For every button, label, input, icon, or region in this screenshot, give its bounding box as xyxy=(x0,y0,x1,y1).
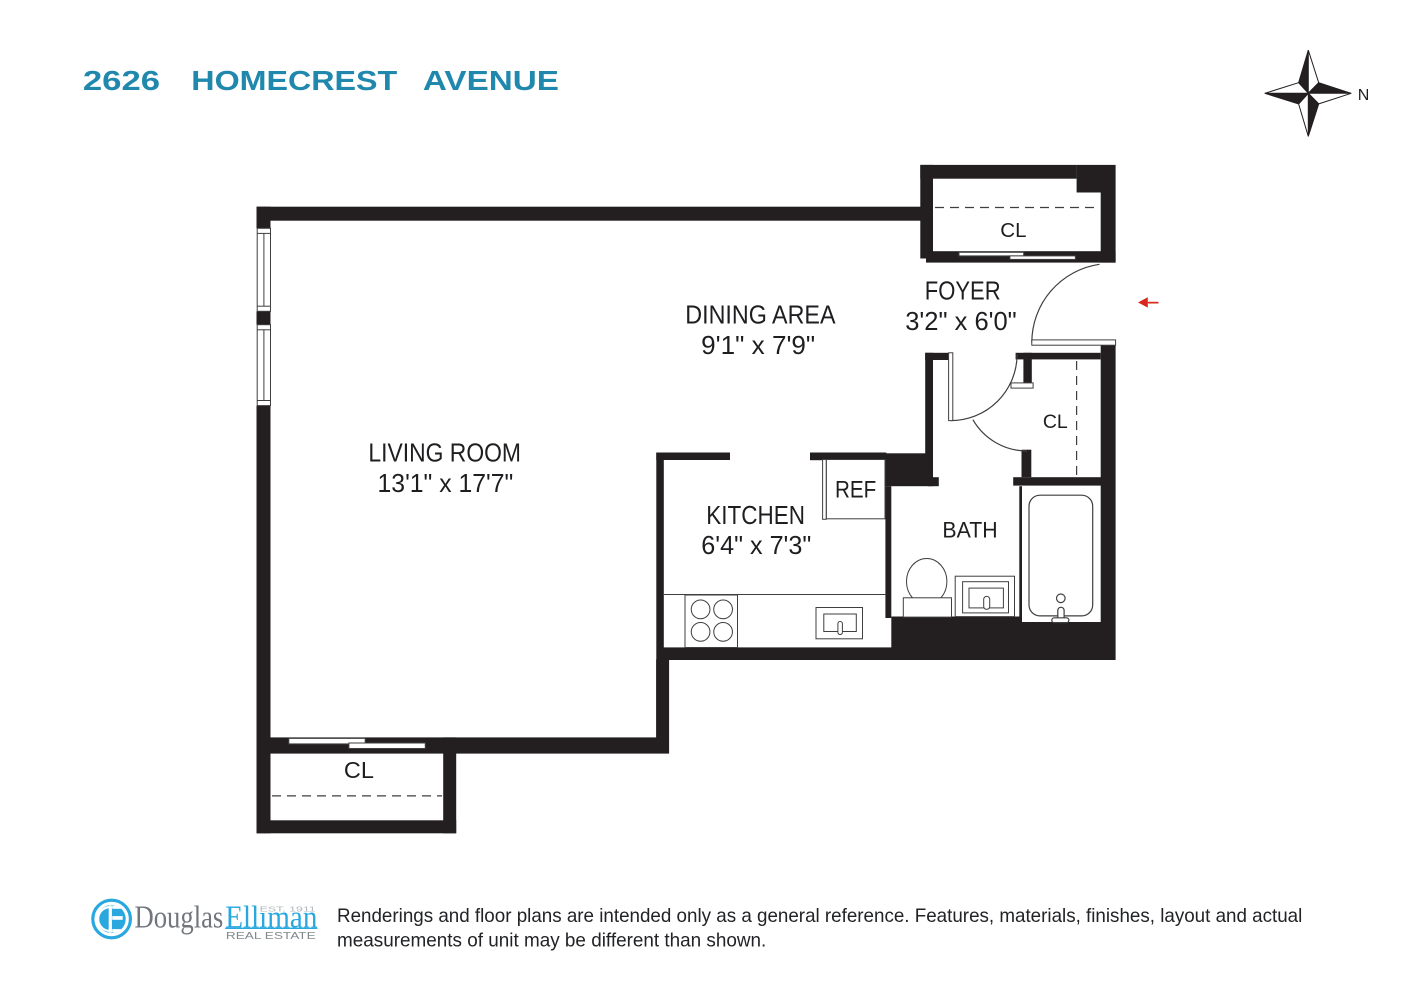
svg-text:KITCHEN: KITCHEN xyxy=(706,500,805,530)
svg-text:BATH: BATH xyxy=(942,518,997,543)
svg-text:DINING AREA: DINING AREA xyxy=(685,299,836,329)
svg-text:CL: CL xyxy=(1000,219,1026,242)
svg-text:Renderings and floor plans are: Renderings and floor plans are intended … xyxy=(337,905,1302,927)
svg-text:6'4" x 7'3": 6'4" x 7'3" xyxy=(701,530,811,560)
svg-text:2626: 2626 xyxy=(83,65,160,96)
svg-text:HOMECREST: HOMECREST xyxy=(191,65,397,96)
svg-text:REAL ESTATE: REAL ESTATE xyxy=(226,931,316,942)
svg-text:FOYER: FOYER xyxy=(925,275,1001,305)
svg-text:Douglas: Douglas xyxy=(135,900,224,935)
svg-text:3'2" x 6'0": 3'2" x 6'0" xyxy=(905,306,1017,336)
svg-text:N: N xyxy=(1358,87,1370,104)
svg-text:CL: CL xyxy=(1043,411,1068,433)
svg-text:CL: CL xyxy=(344,757,374,783)
svg-text:EST. 1911: EST. 1911 xyxy=(260,904,316,913)
svg-text:AVENUE: AVENUE xyxy=(423,65,559,96)
svg-text:13'1" x 17'7": 13'1" x 17'7" xyxy=(378,468,514,498)
svg-text:LIVING ROOM: LIVING ROOM xyxy=(368,438,521,468)
svg-text:measurements of unit may be di: measurements of unit may be different th… xyxy=(337,929,766,951)
svg-text:9'1" x 7'9": 9'1" x 7'9" xyxy=(701,330,815,360)
svg-text:REF: REF xyxy=(835,477,876,504)
